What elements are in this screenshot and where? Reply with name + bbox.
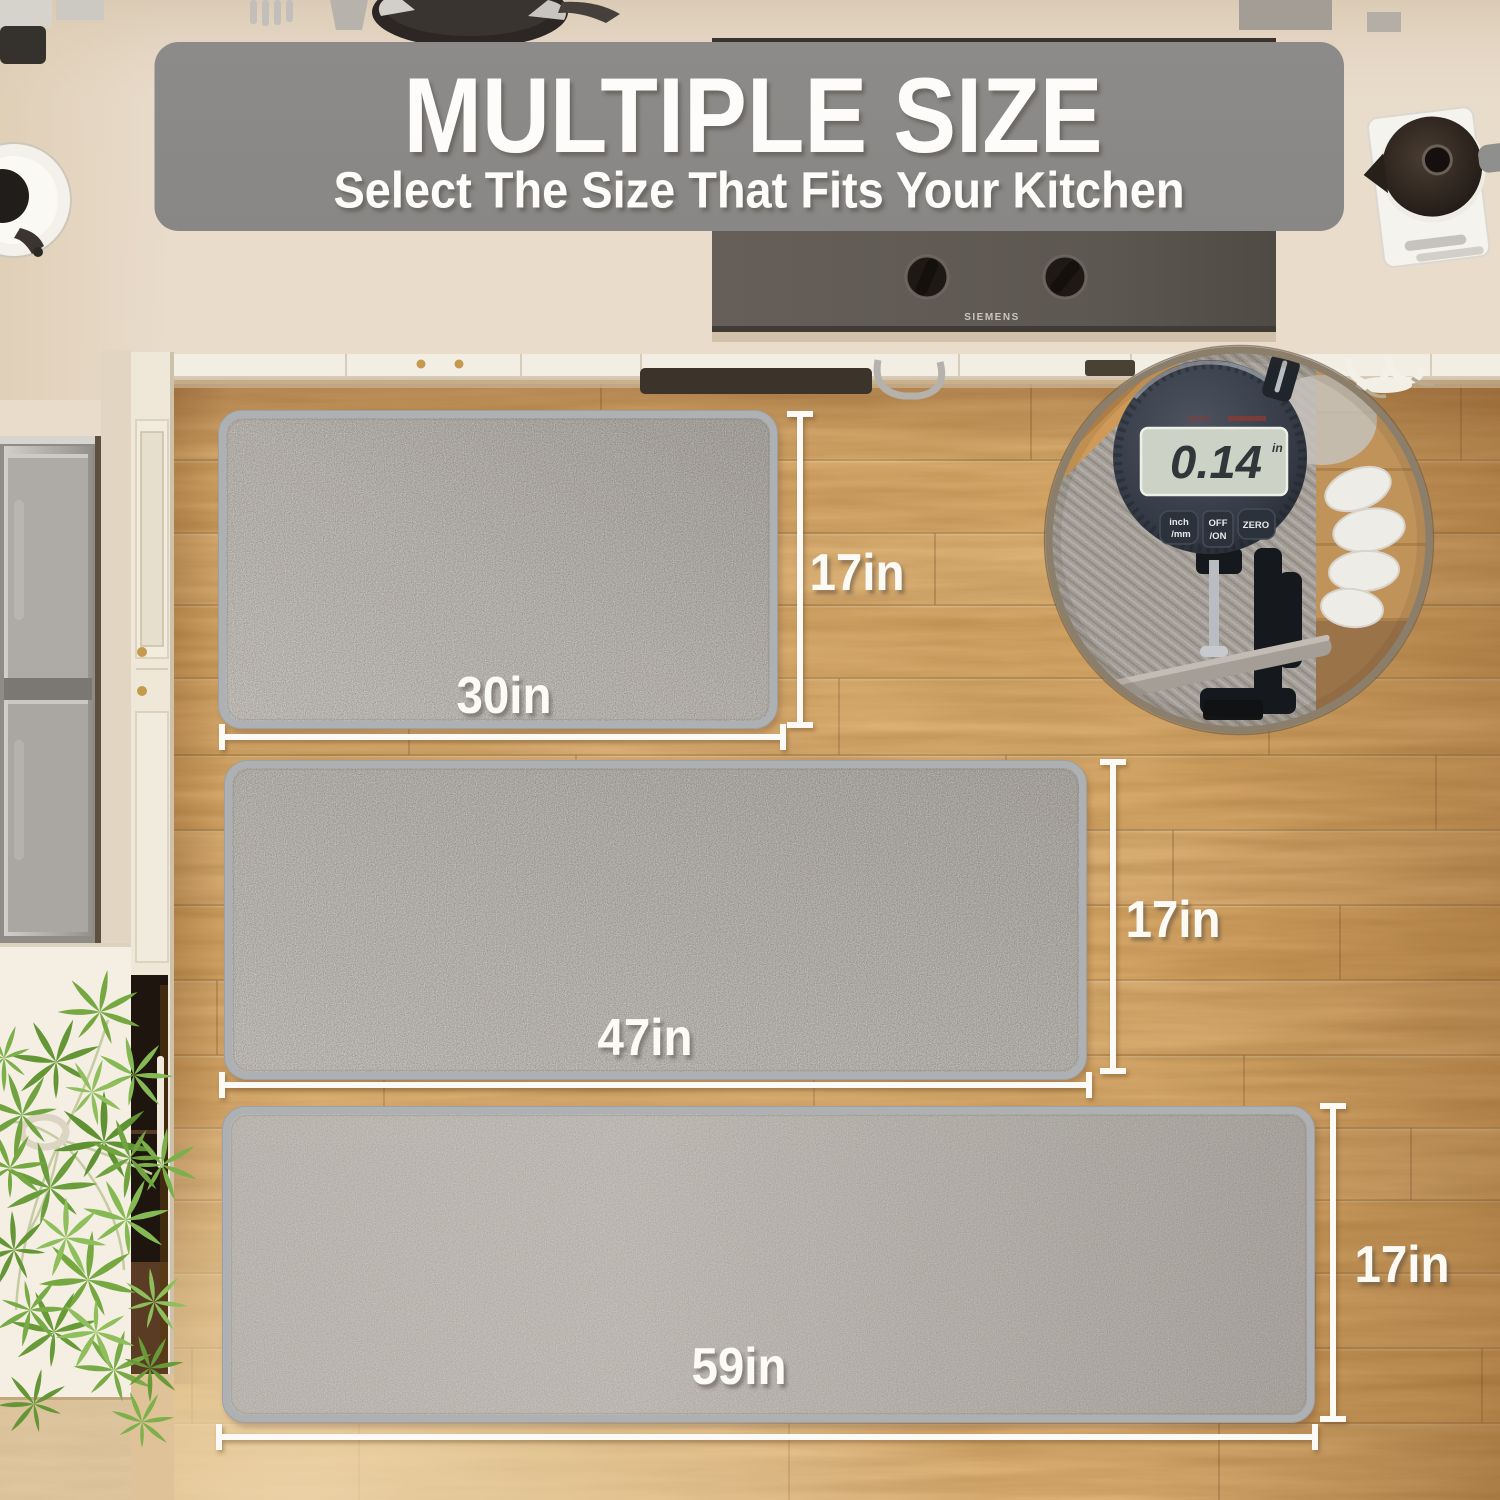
svg-text:59in: 59in	[692, 1338, 787, 1396]
svg-text:OFF: OFF	[1209, 518, 1228, 529]
svg-text:30in: 30in	[457, 667, 552, 725]
svg-text:0.14: 0.14	[1170, 436, 1262, 488]
svg-text:ZERO: ZERO	[1243, 520, 1269, 531]
svg-text:17in: 17in	[810, 544, 905, 602]
svg-text:17in: 17in	[1355, 1236, 1450, 1294]
svg-text:SIEMENS: SIEMENS	[964, 312, 1020, 323]
svg-text:/ON: /ON	[1210, 531, 1227, 542]
svg-text:/mm: /mm	[1171, 529, 1191, 540]
svg-text:17in: 17in	[1126, 891, 1221, 949]
svg-text:47in: 47in	[598, 1009, 693, 1067]
svg-text:MULTIPLE SIZE: MULTIPLE SIZE	[404, 55, 1103, 175]
svg-text:in: in	[1272, 441, 1283, 455]
svg-text:Select The Size That Fits Your: Select The Size That Fits Your Kitchen	[334, 162, 1185, 219]
svg-text:inch: inch	[1169, 517, 1189, 528]
